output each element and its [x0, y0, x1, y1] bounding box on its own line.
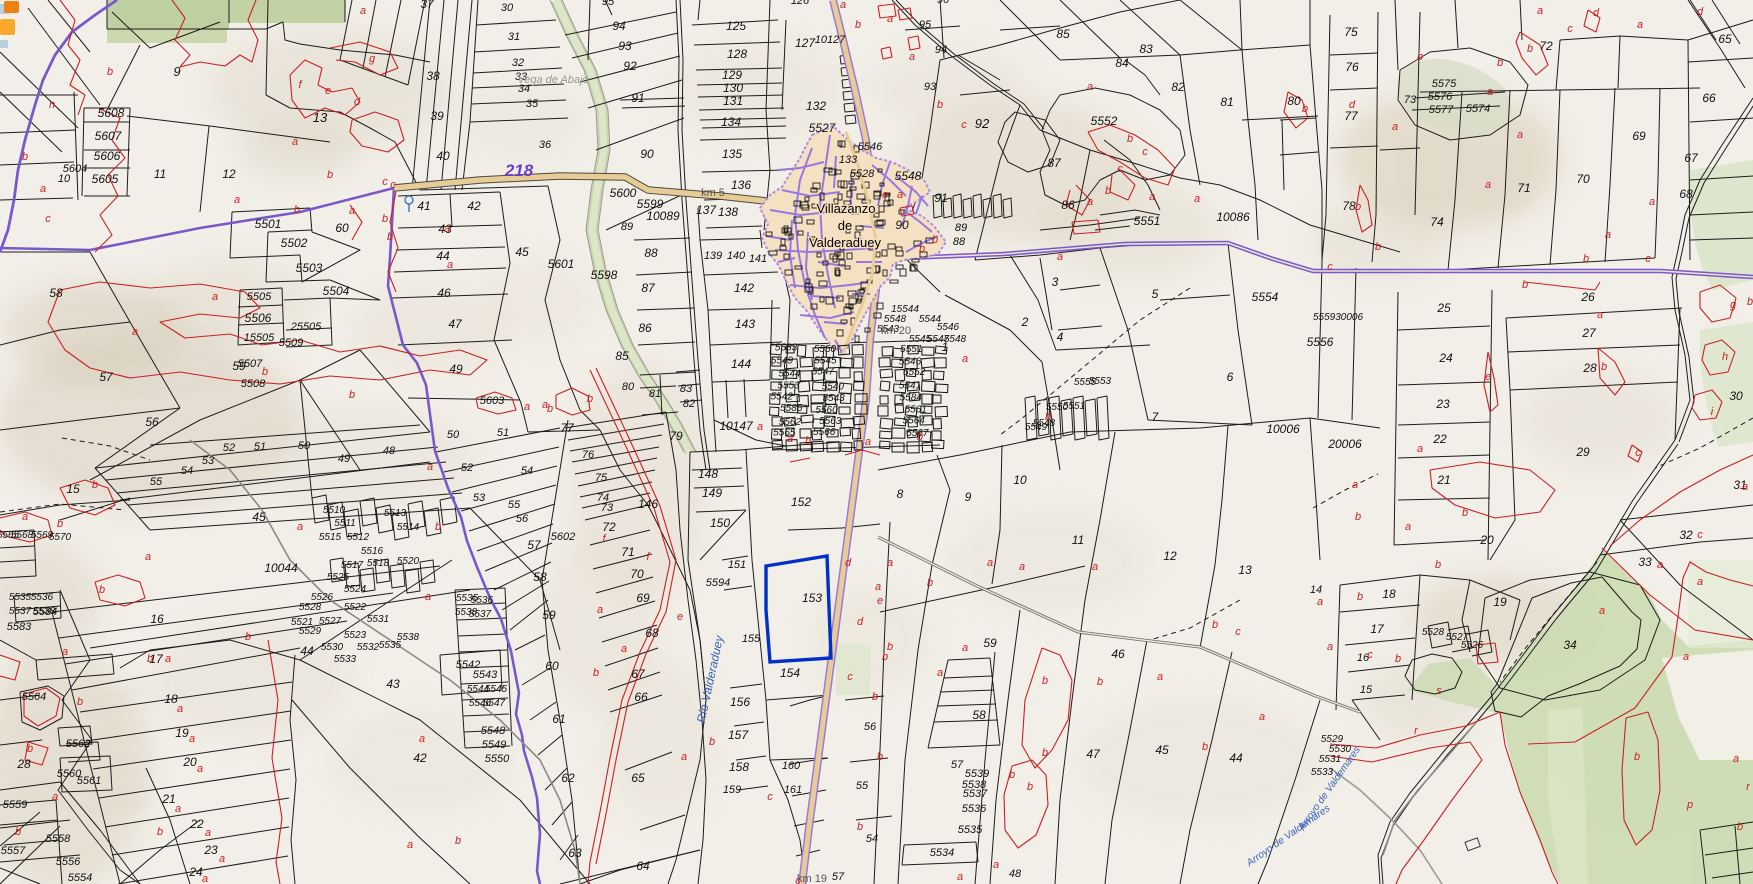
svg-text:a: a: [360, 5, 366, 17]
svg-text:59: 59: [983, 636, 997, 650]
svg-text:139: 139: [704, 250, 722, 262]
svg-text:a: a: [349, 205, 355, 217]
svg-text:65: 65: [1718, 32, 1732, 46]
svg-text:144: 144: [731, 357, 751, 371]
svg-text:b: b: [1042, 675, 1048, 687]
svg-text:42: 42: [467, 199, 481, 213]
svg-text:5508: 5508: [241, 378, 266, 390]
svg-text:5556: 5556: [1307, 335, 1334, 349]
svg-text:5561: 5561: [77, 775, 101, 787]
svg-text:a: a: [189, 733, 195, 745]
svg-text:89: 89: [955, 222, 967, 234]
svg-text:5520: 5520: [397, 556, 420, 567]
svg-text:45: 45: [252, 510, 266, 524]
svg-text:86: 86: [638, 321, 652, 335]
svg-text:5547: 5547: [483, 698, 506, 709]
svg-text:93: 93: [618, 39, 632, 53]
svg-text:5533: 5533: [334, 654, 357, 665]
svg-text:5601: 5601: [548, 257, 575, 271]
svg-text:b: b: [349, 389, 355, 401]
svg-text:58: 58: [533, 570, 547, 584]
svg-text:d: d: [354, 96, 361, 108]
svg-text:5509: 5509: [279, 337, 303, 349]
svg-text:a: a: [962, 642, 968, 654]
svg-text:d: d: [1349, 99, 1356, 111]
svg-text:5511: 5511: [334, 518, 356, 529]
svg-text:5537: 5537: [963, 788, 988, 800]
svg-text:143: 143: [735, 317, 755, 331]
svg-text:75: 75: [595, 472, 608, 484]
svg-text:67: 67: [631, 667, 646, 681]
svg-text:5518: 5518: [367, 558, 390, 569]
svg-text:57: 57: [951, 759, 964, 771]
svg-text:161: 161: [784, 784, 802, 796]
svg-text:79: 79: [669, 429, 683, 443]
svg-text:a: a: [1259, 711, 1265, 723]
svg-text:a: a: [1537, 5, 1543, 17]
svg-text:c: c: [390, 179, 396, 191]
svg-text:b: b: [1601, 361, 1607, 373]
svg-text:9: 9: [965, 490, 972, 504]
svg-text:a: a: [1194, 193, 1200, 205]
svg-text:38: 38: [426, 69, 440, 83]
svg-text:5575: 5575: [1432, 78, 1457, 90]
svg-text:5510: 5510: [323, 505, 346, 516]
svg-text:5507: 5507: [238, 358, 263, 370]
svg-text:155: 155: [742, 633, 761, 645]
svg-text:18: 18: [164, 692, 178, 706]
svg-text:49: 49: [338, 453, 350, 465]
svg-text:b: b: [387, 231, 393, 243]
svg-text:c: c: [767, 791, 773, 803]
svg-text:160: 160: [782, 760, 801, 772]
svg-text:d: d: [1593, 7, 1600, 19]
svg-text:a: a: [1405, 521, 1411, 533]
svg-text:a: a: [1149, 191, 1155, 203]
svg-text:a: a: [840, 0, 846, 11]
svg-text:10147: 10147: [719, 419, 754, 433]
svg-text:85: 85: [1056, 27, 1070, 41]
svg-text:5545: 5545: [814, 356, 837, 367]
svg-text:5533: 5533: [1311, 767, 1334, 778]
svg-text:e: e: [1485, 371, 1491, 383]
svg-text:5554: 5554: [68, 872, 92, 884]
svg-text:5550: 5550: [485, 753, 510, 765]
svg-text:5517: 5517: [341, 560, 364, 571]
svg-text:5548: 5548: [944, 334, 967, 345]
svg-text:5553: 5553: [778, 381, 801, 392]
svg-text:Villazanzo: Villazanzo: [816, 201, 875, 216]
svg-text:5512: 5512: [347, 532, 370, 543]
svg-text:9: 9: [173, 64, 180, 79]
svg-text:a: a: [22, 511, 28, 523]
svg-text:5560: 5560: [815, 405, 838, 416]
svg-text:10044: 10044: [264, 561, 298, 575]
svg-text:b: b: [1045, 411, 1051, 423]
svg-text:5570: 5570: [49, 532, 72, 543]
svg-text:c: c: [1142, 146, 1148, 158]
svg-text:5538: 5538: [33, 606, 56, 617]
svg-text:36: 36: [539, 139, 552, 151]
svg-text:48: 48: [383, 445, 396, 457]
svg-text:73: 73: [1404, 94, 1417, 106]
svg-text:a: a: [444, 223, 450, 235]
svg-text:5566: 5566: [813, 427, 836, 438]
svg-text:a: a: [407, 839, 413, 851]
svg-text:82: 82: [1171, 80, 1185, 94]
svg-text:5536: 5536: [471, 595, 494, 606]
svg-text:a: a: [1092, 561, 1098, 573]
svg-text:23: 23: [203, 843, 218, 857]
svg-text:88: 88: [644, 246, 658, 260]
svg-text:18: 18: [1382, 587, 1396, 601]
svg-text:5557: 5557: [1, 845, 26, 857]
svg-text:b: b: [1522, 279, 1528, 291]
svg-text:13: 13: [313, 110, 328, 125]
svg-text:a: a: [165, 653, 171, 665]
svg-text:b: b: [327, 169, 333, 181]
svg-text:5549: 5549: [1025, 422, 1048, 433]
svg-text:a: a: [875, 581, 881, 593]
svg-text:5541: 5541: [899, 380, 921, 391]
svg-text:81: 81: [1220, 95, 1233, 109]
svg-text:5531: 5531: [1319, 754, 1341, 765]
svg-text:d: d: [1697, 6, 1704, 18]
svg-text:a: a: [1657, 559, 1663, 571]
svg-text:5527: 5527: [809, 121, 837, 135]
svg-text:5545: 5545: [485, 684, 508, 695]
svg-text:78: 78: [1342, 199, 1356, 213]
svg-text:83: 83: [680, 383, 693, 395]
svg-text:b: b: [1042, 747, 1048, 759]
svg-text:5537: 5537: [469, 609, 492, 620]
svg-text:b: b: [877, 751, 883, 763]
svg-text:5583: 5583: [775, 343, 798, 354]
svg-text:93: 93: [924, 81, 937, 93]
svg-text:20: 20: [1479, 533, 1494, 547]
svg-text:a: a: [987, 557, 993, 569]
svg-text:a: a: [447, 259, 453, 271]
svg-text:5525: 5525: [327, 572, 350, 583]
svg-text:5551: 5551: [900, 344, 922, 355]
svg-text:5524: 5524: [344, 584, 367, 595]
svg-text:51: 51: [497, 427, 509, 439]
svg-text:a: a: [1742, 481, 1748, 493]
svg-text:5537: 5537: [9, 606, 32, 617]
svg-text:90: 90: [895, 218, 909, 232]
svg-text:63: 63: [568, 846, 582, 860]
svg-text:146: 146: [638, 497, 658, 511]
svg-text:75: 75: [1344, 25, 1358, 39]
svg-text:a: a: [427, 461, 433, 473]
svg-text:134: 134: [721, 115, 741, 129]
svg-text:132: 132: [806, 99, 826, 113]
svg-text:56: 56: [145, 415, 159, 429]
svg-text:5577: 5577: [1429, 104, 1454, 116]
svg-text:5528: 5528: [299, 602, 322, 613]
svg-text:5574: 5574: [1466, 103, 1490, 115]
svg-text:5551: 5551: [1134, 214, 1161, 228]
svg-text:152: 152: [791, 495, 811, 509]
svg-text:b: b: [22, 151, 28, 163]
svg-text:a: a: [1487, 86, 1493, 98]
svg-text:5564: 5564: [903, 416, 926, 427]
svg-text:87: 87: [1047, 156, 1062, 170]
svg-text:137: 137: [696, 203, 717, 217]
svg-text:77: 77: [560, 421, 575, 435]
svg-text:89: 89: [621, 221, 633, 233]
svg-text:84: 84: [1115, 56, 1129, 70]
svg-text:a: a: [1697, 576, 1703, 588]
svg-text:5549: 5549: [482, 739, 506, 751]
svg-text:95: 95: [919, 19, 932, 31]
svg-text:5528: 5528: [850, 168, 875, 180]
svg-text:14: 14: [1310, 584, 1322, 596]
svg-text:27: 27: [1581, 326, 1597, 340]
svg-text:87: 87: [641, 281, 656, 295]
svg-text:a: a: [145, 551, 151, 563]
svg-text:66: 66: [1702, 91, 1716, 105]
svg-text:a: a: [177, 703, 183, 715]
svg-text:34: 34: [1563, 638, 1577, 652]
svg-text:a: a: [1605, 229, 1611, 241]
svg-text:125: 125: [726, 19, 746, 33]
svg-text:5535: 5535: [9, 592, 32, 603]
svg-text:a: a: [757, 421, 763, 433]
svg-text:c: c: [961, 119, 967, 131]
svg-text:b: b: [932, 234, 938, 246]
svg-text:e: e: [677, 611, 683, 623]
svg-text:10006: 10006: [1266, 422, 1300, 436]
svg-text:c: c: [1327, 261, 1333, 273]
svg-text:24: 24: [188, 865, 203, 879]
svg-text:b: b: [587, 393, 593, 405]
svg-text:35: 35: [526, 98, 539, 110]
svg-text:g: g: [369, 53, 376, 65]
svg-text:b: b: [1417, 51, 1423, 63]
svg-text:19: 19: [1493, 595, 1507, 609]
svg-text:a: a: [1327, 641, 1333, 653]
svg-text:83: 83: [1139, 42, 1153, 56]
svg-text:71: 71: [621, 545, 634, 559]
svg-text:5521: 5521: [291, 617, 313, 628]
svg-text:12: 12: [1163, 549, 1177, 563]
svg-text:5523: 5523: [344, 630, 367, 641]
svg-text:c: c: [382, 176, 388, 188]
svg-text:5548: 5548: [481, 725, 506, 737]
svg-text:61: 61: [552, 712, 565, 726]
svg-text:5503: 5503: [296, 261, 323, 275]
svg-text:b: b: [157, 826, 163, 838]
svg-text:32: 32: [1679, 528, 1693, 542]
svg-text:b: b: [99, 584, 105, 596]
svg-text:b: b: [855, 19, 861, 31]
svg-text:76: 76: [582, 449, 595, 461]
svg-text:10: 10: [1013, 473, 1027, 487]
svg-text:53: 53: [473, 492, 486, 504]
svg-text:148: 148: [698, 467, 718, 481]
svg-text:b: b: [27, 743, 33, 755]
svg-text:15: 15: [1360, 684, 1373, 696]
svg-text:5554: 5554: [1252, 290, 1279, 304]
svg-text:b: b: [882, 651, 888, 663]
svg-text:b: b: [1027, 781, 1033, 793]
svg-text:a: a: [419, 733, 425, 745]
svg-text:b: b: [107, 66, 113, 78]
svg-text:a: a: [425, 591, 431, 603]
svg-text:92: 92: [975, 116, 990, 131]
svg-text:5543: 5543: [822, 393, 845, 404]
svg-text:25: 25: [1436, 301, 1451, 315]
svg-text:5604: 5604: [63, 163, 87, 175]
svg-text:b: b: [1105, 185, 1111, 197]
svg-text:5546: 5546: [937, 322, 960, 333]
svg-text:km 5: km 5: [701, 187, 725, 199]
svg-text:90: 90: [640, 147, 654, 161]
svg-text:5603: 5603: [480, 395, 505, 407]
svg-text:b: b: [1355, 201, 1361, 213]
svg-text:44: 44: [300, 644, 314, 658]
svg-text:77: 77: [1344, 109, 1359, 123]
svg-text:5552: 5552: [1091, 114, 1118, 128]
svg-text:50: 50: [298, 440, 311, 452]
svg-text:52: 52: [461, 462, 473, 474]
svg-text:555930006: 555930006: [1313, 312, 1363, 323]
svg-text:b: b: [709, 736, 715, 748]
svg-text:b: b: [1462, 507, 1468, 519]
svg-text:5599: 5599: [637, 197, 664, 211]
svg-text:5563: 5563: [819, 416, 842, 427]
svg-text:43: 43: [386, 677, 400, 691]
svg-text:c: c: [1697, 529, 1703, 541]
svg-text:6: 6: [1227, 370, 1234, 384]
svg-text:58: 58: [972, 708, 986, 722]
svg-text:54: 54: [181, 465, 193, 477]
svg-text:57: 57: [832, 871, 845, 883]
svg-text:5550: 5550: [814, 344, 837, 355]
svg-text:54: 54: [866, 833, 878, 845]
svg-text:71: 71: [1517, 181, 1530, 195]
svg-text:5600: 5600: [610, 186, 637, 200]
svg-text:b: b: [435, 521, 441, 533]
svg-text:20: 20: [182, 755, 197, 769]
svg-text:127: 127: [795, 36, 816, 50]
svg-text:67: 67: [1684, 151, 1699, 165]
svg-text:a: a: [1637, 19, 1643, 31]
svg-text:5544: 5544: [778, 369, 801, 380]
svg-text:5522: 5522: [344, 602, 367, 613]
svg-text:22: 22: [1432, 432, 1447, 446]
svg-text:64: 64: [636, 859, 650, 873]
svg-text:5532: 5532: [357, 642, 380, 653]
svg-text:131: 131: [723, 94, 743, 108]
svg-text:a: a: [1019, 561, 1025, 573]
svg-text:5546: 5546: [899, 356, 922, 367]
svg-text:b: b: [593, 667, 599, 679]
svg-text:a: a: [1517, 129, 1523, 141]
svg-text:5562: 5562: [779, 417, 802, 428]
svg-text:65: 65: [631, 771, 645, 785]
svg-text:76: 76: [1345, 60, 1359, 74]
svg-text:80: 80: [622, 381, 635, 393]
svg-text:5513: 5513: [384, 508, 407, 519]
svg-text:4: 4: [1057, 330, 1064, 344]
svg-text:Valderaduey: Valderaduey: [809, 235, 882, 250]
svg-text:p: p: [1686, 799, 1693, 811]
svg-text:46: 46: [437, 286, 451, 300]
svg-text:a: a: [962, 353, 968, 365]
svg-text:5558: 5558: [46, 833, 71, 845]
svg-text:c: c: [1235, 626, 1241, 638]
svg-text:a: a: [292, 136, 298, 148]
svg-text:5540: 5540: [822, 381, 845, 392]
svg-text:5598: 5598: [591, 268, 618, 282]
svg-text:5546: 5546: [858, 141, 883, 153]
svg-text:b: b: [919, 243, 925, 255]
svg-text:138: 138: [718, 205, 738, 219]
svg-text:135: 135: [722, 147, 742, 161]
svg-text:5515: 5515: [319, 532, 342, 543]
svg-text:b: b: [147, 653, 153, 665]
svg-text:69: 69: [636, 591, 650, 605]
svg-text:a: a: [524, 401, 530, 413]
svg-text:a: a: [597, 604, 603, 616]
svg-text:45: 45: [515, 245, 529, 259]
svg-text:142: 142: [734, 281, 754, 295]
svg-text:5501: 5501: [255, 217, 282, 231]
svg-text:5548: 5548: [895, 169, 922, 183]
svg-text:c: c: [847, 671, 853, 683]
svg-text:21: 21: [1436, 473, 1450, 487]
svg-text:33: 33: [1638, 555, 1652, 569]
svg-text:126: 126: [791, 0, 810, 7]
svg-text:b: b: [1097, 676, 1103, 688]
svg-text:5534: 5534: [930, 847, 954, 859]
svg-text:130: 130: [723, 81, 743, 95]
svg-text:96: 96: [937, 0, 950, 6]
svg-text:23: 23: [1435, 397, 1450, 411]
svg-text:b: b: [262, 366, 268, 378]
svg-text:92: 92: [623, 59, 637, 73]
svg-text:c: c: [1645, 253, 1651, 265]
svg-text:28: 28: [16, 757, 31, 771]
svg-text:a: a: [909, 51, 915, 63]
svg-text:66: 66: [634, 690, 648, 704]
svg-text:5528: 5528: [1422, 627, 1445, 638]
svg-text:24: 24: [1438, 351, 1453, 365]
svg-text:5608: 5608: [98, 106, 125, 120]
svg-text:b: b: [245, 631, 251, 643]
svg-text:a: a: [1649, 196, 1655, 208]
svg-text:5504: 5504: [323, 284, 350, 298]
svg-text:a: a: [1597, 309, 1603, 321]
svg-text:48: 48: [1009, 868, 1022, 880]
svg-text:5536: 5536: [962, 803, 987, 815]
svg-text:86: 86: [1061, 198, 1075, 212]
svg-text:a: a: [297, 521, 303, 533]
svg-text:28: 28: [1582, 361, 1597, 375]
svg-text:5549: 5549: [771, 355, 794, 366]
svg-text:141: 141: [749, 253, 767, 265]
svg-text:60: 60: [545, 659, 559, 673]
svg-text:b: b: [857, 821, 863, 833]
svg-text:149: 149: [702, 486, 722, 500]
svg-text:5562: 5562: [66, 738, 90, 750]
svg-text:58: 58: [49, 286, 63, 300]
svg-text:g: g: [1730, 299, 1737, 311]
svg-text:82: 82: [683, 398, 695, 410]
svg-text:b: b: [1634, 751, 1640, 763]
